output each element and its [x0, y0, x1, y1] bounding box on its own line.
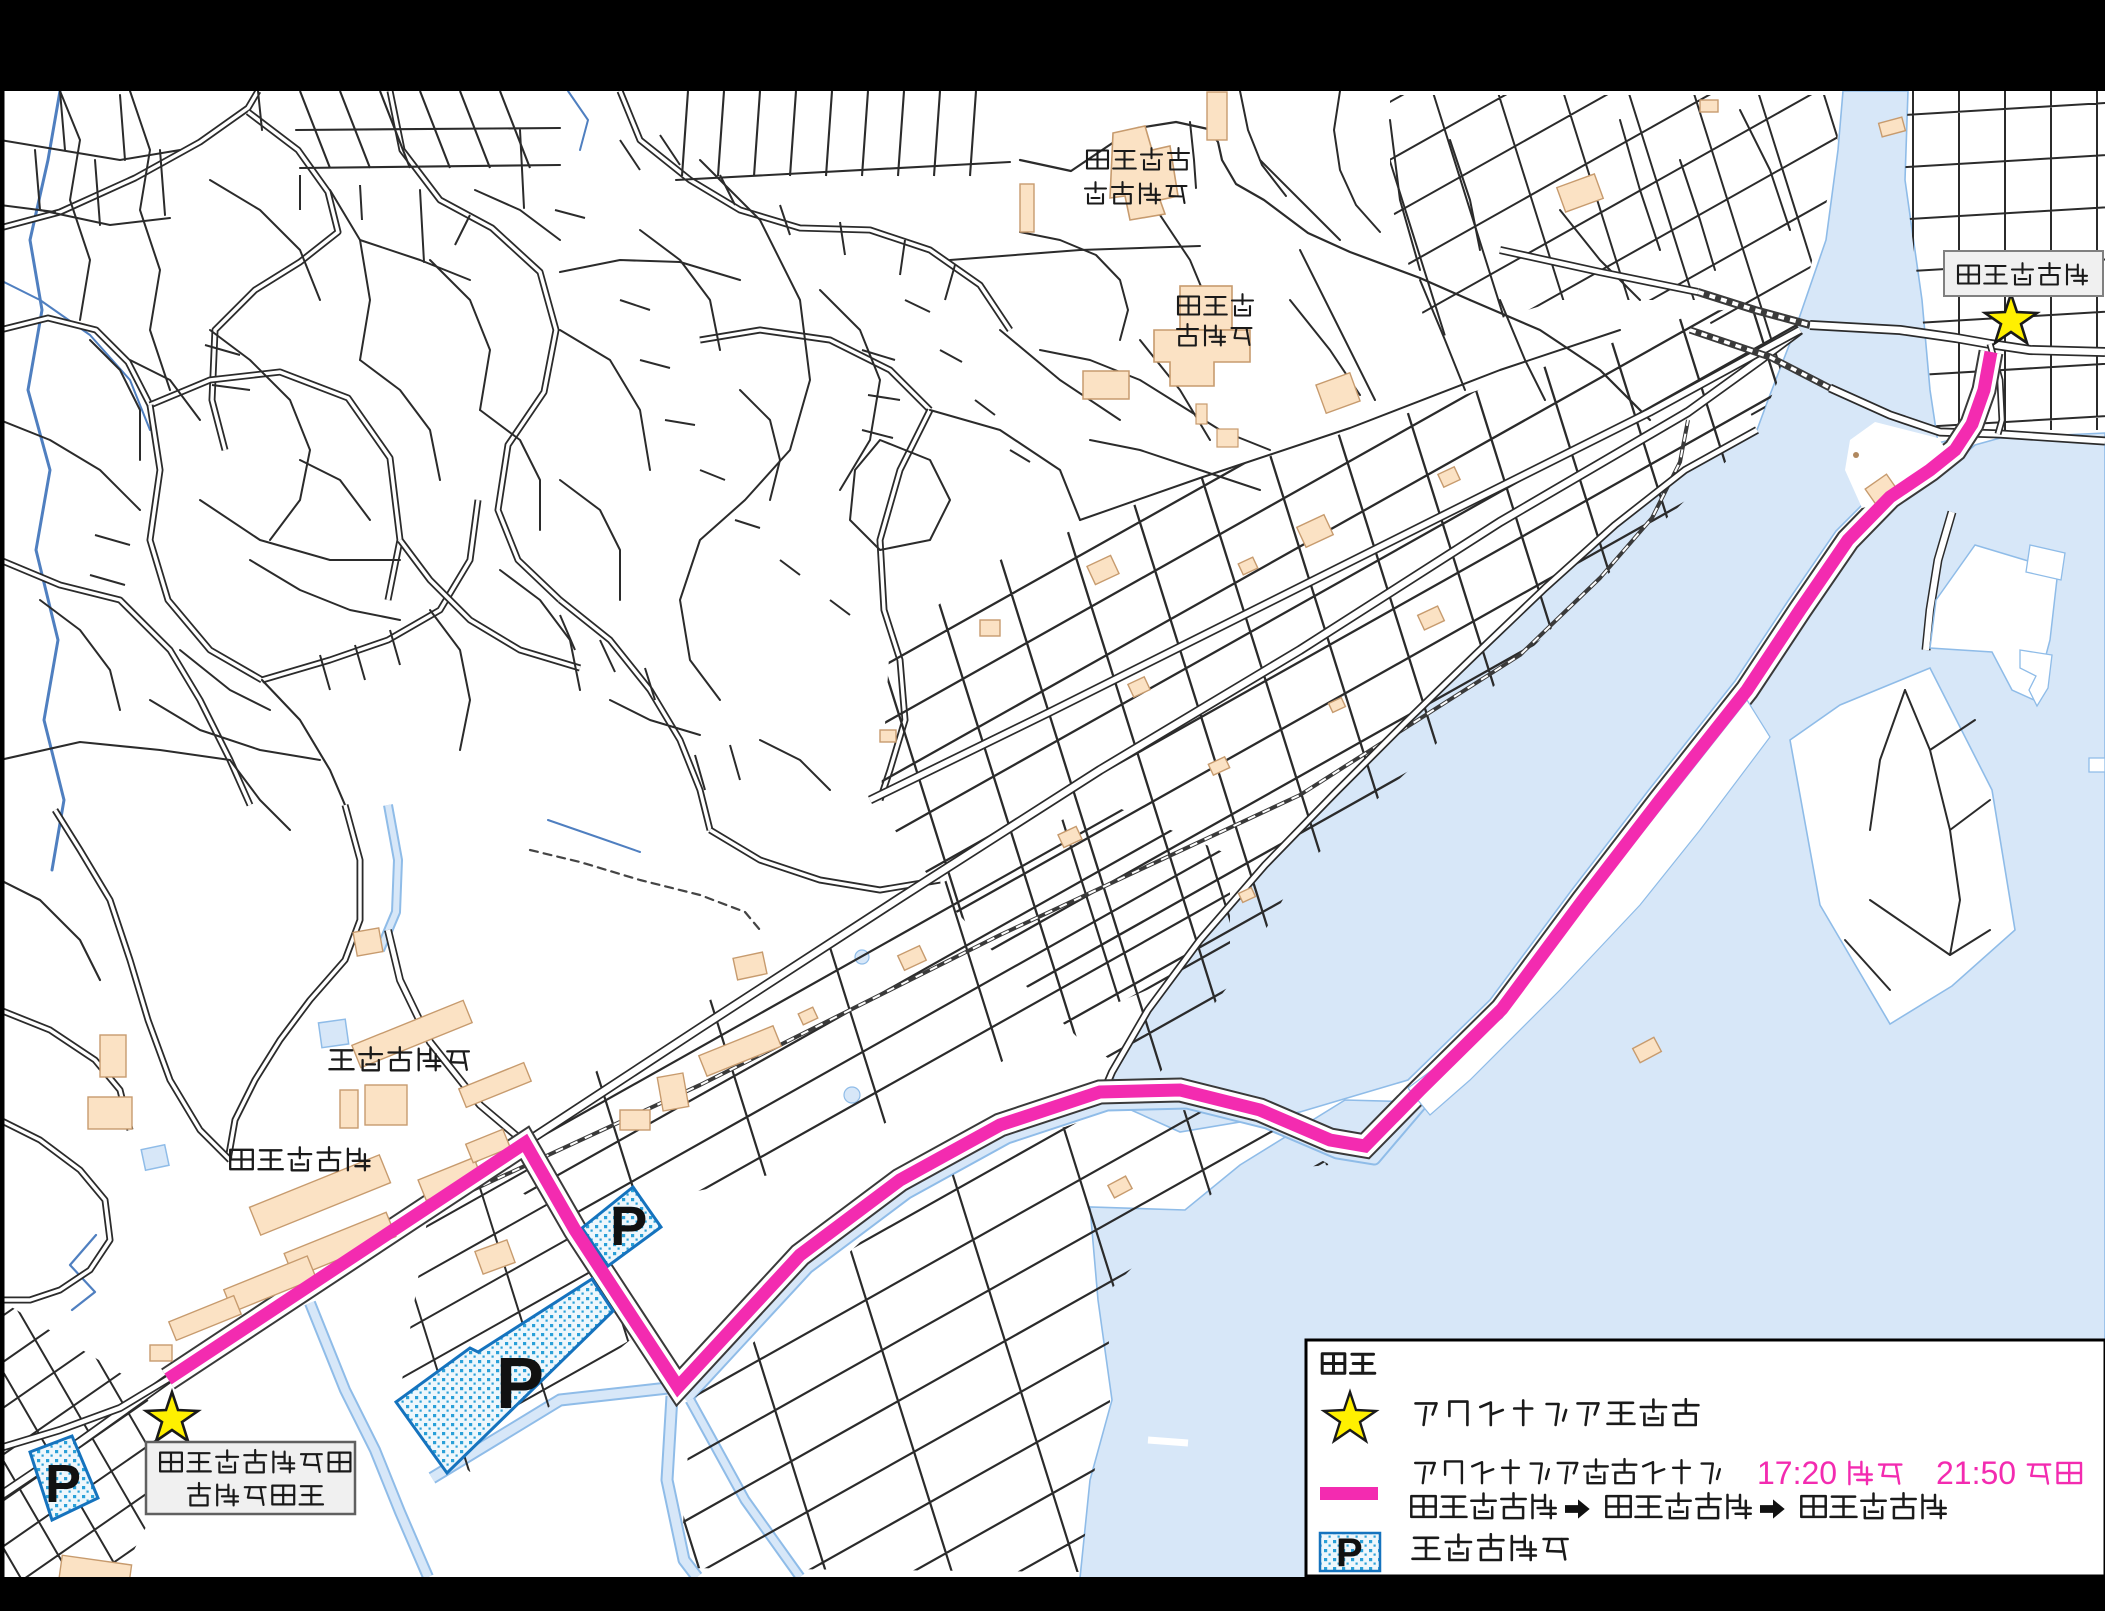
svg-text:17:20: 17:20	[1757, 1455, 1837, 1491]
svg-text:21:50: 21:50	[1936, 1455, 2016, 1491]
svg-text:P: P	[610, 1194, 647, 1257]
svg-text:P: P	[45, 1454, 81, 1514]
svg-text:P: P	[1336, 1531, 1363, 1575]
svg-text:P: P	[496, 1344, 544, 1424]
